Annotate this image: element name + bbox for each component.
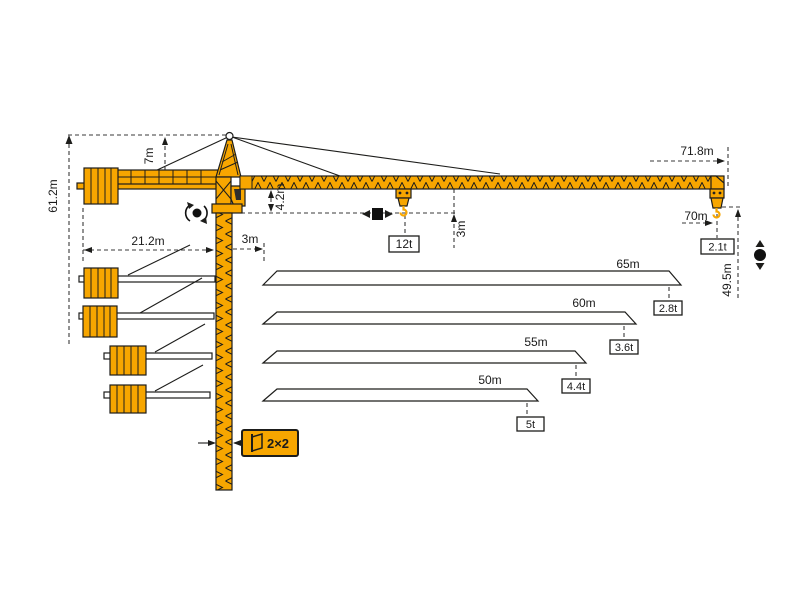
length-60m-label: 60m	[572, 296, 595, 310]
trolley-tip	[710, 189, 724, 218]
slewing-icon	[186, 202, 207, 224]
tip-capacity-label: 2.1t	[708, 242, 726, 254]
capacity-50m: 5t	[526, 419, 535, 431]
counterjib-clearance-label: 3m	[242, 232, 259, 246]
total-height-label: 61.2m	[46, 179, 60, 212]
hoisting-icon	[754, 240, 766, 270]
jib-root-height-label: 4.2m	[273, 184, 287, 211]
capacity-55m: 4.4t	[567, 381, 585, 393]
counterweight-block	[84, 168, 118, 204]
apex-pulley	[226, 133, 233, 140]
ballast-row-3	[104, 324, 212, 375]
mast-section-label: 2×2	[267, 436, 289, 451]
mast	[216, 213, 232, 490]
trolley-mid	[396, 189, 411, 216]
mast-section-callout: 2×2	[198, 430, 298, 456]
jib-variant-60m	[263, 312, 636, 324]
max-radius-label: 70m	[684, 209, 707, 223]
counter-jib	[77, 168, 218, 204]
diagram-canvas: 2×2 12t 2.1t 2.8t 3.6t 4.4t 5t 61.2m 7m …	[0, 0, 800, 600]
turntable	[212, 204, 242, 213]
length-65m-label: 65m	[616, 257, 639, 271]
hook-icon	[401, 206, 407, 216]
length-55m-label: 55m	[524, 335, 547, 349]
jib-variant-55m	[263, 351, 586, 363]
max-capacity-label: 12t	[396, 237, 413, 251]
ballast-row-1	[79, 245, 215, 298]
jib-variant-50m	[263, 389, 538, 401]
capacity-boxes: 12t 2.1t 2.8t 3.6t 4.4t 5t	[389, 236, 734, 431]
tower-apex	[212, 133, 245, 214]
crane-diagram: 2×2 12t 2.1t 2.8t 3.6t 4.4t 5t 61.2m 7m …	[0, 0, 800, 600]
length-50m-label: 50m	[478, 373, 501, 387]
trolley-travel-icon	[362, 208, 393, 220]
capacity-60m: 3.6t	[615, 342, 633, 354]
counterjib-radius-label: 21.2m	[131, 234, 164, 248]
overall-length-label: 71.8m	[680, 144, 713, 158]
capacity-65m: 2.8t	[659, 303, 677, 315]
tower-top-label: 7m	[142, 148, 156, 165]
jib-variant-65m	[263, 271, 681, 285]
hook-height-label: 49.5m	[720, 263, 734, 296]
main-jib	[240, 176, 724, 189]
hook-clearance-label: 3m	[454, 221, 468, 238]
